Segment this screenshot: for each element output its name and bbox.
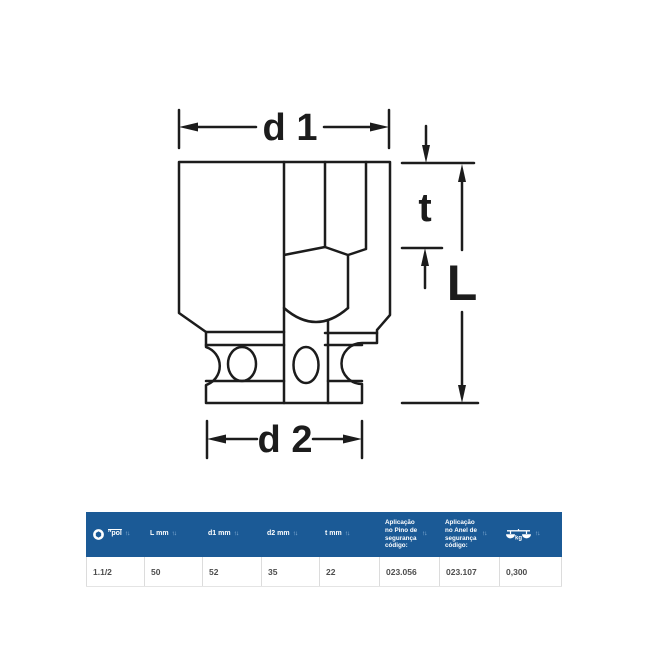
sort-icon[interactable]: ↑↓ — [293, 530, 298, 538]
d1-arrow-left — [179, 123, 198, 132]
sort-icon[interactable]: ↑↓ — [345, 530, 350, 538]
cell-t-mm: 22 — [319, 557, 379, 586]
dim-label-t: t — [418, 186, 431, 230]
t-arrow-up — [421, 248, 429, 266]
hex-recess-lines — [284, 162, 366, 403]
column-header-L-mm[interactable]: L mm ↑↓ — [144, 512, 202, 557]
dim-label-L: L — [447, 255, 478, 311]
pin-hole — [294, 347, 319, 383]
socket-diagram: d 1 t L d 2 — [0, 0, 650, 480]
column-header-codigo-pino[interactable]: Aplicação no Pino de segurança código: ↑… — [379, 512, 439, 557]
t-arrow-down — [422, 145, 430, 163]
L-arrow-up — [458, 164, 466, 182]
column-label: t mm — [325, 530, 342, 539]
column-header-t-mm[interactable]: t mm ↑↓ — [319, 512, 379, 557]
sort-icon[interactable]: ↑↓ — [482, 530, 487, 538]
d1-arrow-right — [370, 123, 389, 132]
weight-unit-label: kg — [515, 535, 522, 541]
retaining-ball — [228, 347, 256, 381]
sort-icon[interactable]: ↑↓ — [535, 530, 540, 538]
cell-size-pol: 1.1/2 — [86, 557, 144, 586]
dimension-d2: d 2 — [207, 419, 362, 461]
cell-codigo-anel: 023.107 — [439, 557, 499, 586]
L-arrow-down — [458, 385, 466, 403]
dim-label-d2: d 2 — [258, 419, 313, 461]
dimension-d1: d 1 — [179, 107, 389, 149]
dim-label-d1: d 1 — [263, 107, 318, 149]
column-label: L mm — [150, 530, 169, 539]
socket-body — [179, 162, 390, 403]
product-spec-table: ″pol ↑↓ L mm ↑↓ d1 mm ↑↓ d2 mm ↑↓ t mm ↑… — [86, 512, 562, 587]
column-header-weight-kg[interactable]: kg ↑↓ — [499, 512, 562, 557]
cell-d2-mm: 35 — [261, 557, 319, 586]
column-header-d2-mm[interactable]: d2 mm ↑↓ — [261, 512, 319, 557]
column-label: d2 mm — [267, 530, 290, 539]
column-header-d1-mm[interactable]: d1 mm ↑↓ — [202, 512, 261, 557]
cell-codigo-pino: 023.056 — [379, 557, 439, 586]
d2-arrow-right — [343, 435, 362, 444]
sort-icon[interactable]: ↑↓ — [125, 530, 130, 538]
column-header-size-pol[interactable]: ″pol ↑↓ — [86, 512, 144, 557]
balance-scale-kg-icon: kg — [505, 528, 532, 542]
column-label: ″pol — [108, 530, 122, 539]
column-label: Aplicação no Anel de segurança código: — [445, 519, 479, 550]
table-row: 1.1/2 50 52 35 22 023.056 023.107 0,300 — [86, 557, 562, 587]
table-header-row: ″pol ↑↓ L mm ↑↓ d1 mm ↑↓ d2 mm ↑↓ t mm ↑… — [86, 512, 562, 557]
hex-socket-icon — [92, 528, 105, 541]
cell-d1-mm: 52 — [202, 557, 261, 586]
sort-icon[interactable]: ↑↓ — [234, 530, 239, 538]
column-header-codigo-anel[interactable]: Aplicação no Anel de segurança código: ↑… — [439, 512, 499, 557]
sort-icon[interactable]: ↑↓ — [172, 530, 177, 538]
sort-icon[interactable]: ↑↓ — [422, 530, 427, 538]
d2-arrow-left — [207, 435, 226, 444]
bore-bottom-arc — [284, 308, 348, 322]
cell-L-mm: 50 — [144, 557, 202, 586]
dimension-L: L — [402, 164, 478, 403]
cell-weight-kg: 0,300 — [499, 557, 562, 586]
column-label: d1 mm — [208, 530, 231, 539]
column-label: Aplicação no Pino de segurança código: — [385, 519, 419, 550]
